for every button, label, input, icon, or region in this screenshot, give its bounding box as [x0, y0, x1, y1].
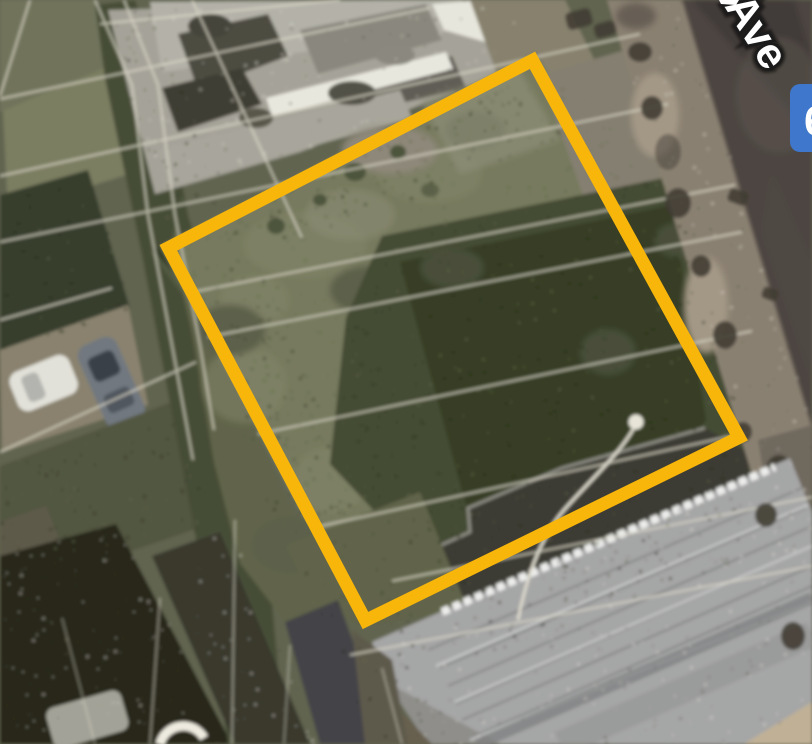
svg-text:6: 6	[804, 97, 812, 144]
